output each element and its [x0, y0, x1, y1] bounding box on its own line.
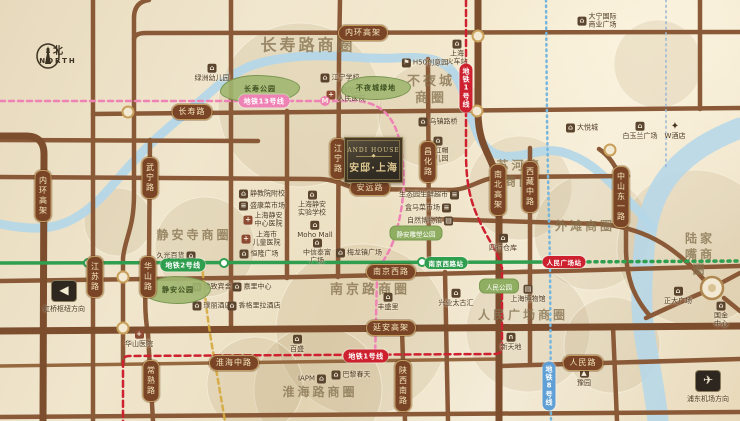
pearl-tower-icon — [35, 43, 61, 69]
bld-icon: ⌂ — [717, 302, 726, 311]
landmark-text: 中信泰富 广场 — [303, 249, 331, 266]
landmark-text: 国金中心 — [712, 312, 731, 329]
landmark-label: ⌂上海静安 实验学校 — [298, 191, 326, 218]
cart-icon: ≡ — [442, 204, 451, 213]
landmark-text: 白玉兰广场 — [623, 132, 658, 140]
bld-icon: ⌂ — [332, 371, 341, 380]
metro-line-1-badge: 地铁1号线 — [343, 350, 388, 363]
landmark-text: 新天地 — [501, 343, 522, 351]
school-icon: ⌂ — [239, 190, 248, 199]
bld-icon: ⌂ — [578, 17, 587, 26]
road-badge: 人民路 — [563, 355, 604, 371]
metro-line-2-badge: 南京西路站 — [425, 257, 468, 269]
flag-icon: ⚑ — [402, 59, 411, 68]
road-badge: 长寿路 — [172, 104, 213, 120]
road-badge: 中山东一路 — [613, 166, 630, 228]
landmark-text: 百盛 — [290, 345, 304, 353]
landmark-label: ⌂梅龙镇广场 — [336, 249, 382, 258]
metro-m-icon: M — [320, 96, 330, 106]
arrow-left-icon: ◀ — [51, 280, 77, 302]
landmark-text: 兴业太古汇 — [439, 299, 474, 307]
landmark-text: 巴黎春天 — [343, 371, 371, 379]
metro-station-m-icon: M — [320, 96, 330, 106]
bld-icon: ⌂ — [313, 239, 322, 248]
landmark-text: 静教院附校 — [250, 190, 285, 198]
landmark-label: ⌂白玉兰广场 — [623, 122, 658, 140]
map-canvas: 长寿路商圈不夜城 商圈苏河湾 商圈外滩商圈陆家嘴商圈静安寺商圈南京路商圈人民广场… — [0, 0, 740, 421]
landmark-text: IAPM — [298, 375, 315, 383]
bld-icon: ⌂ — [336, 249, 345, 258]
direction-text: 虹桥枢纽方向 — [43, 304, 85, 314]
road-badge: 延安高架 — [366, 320, 416, 336]
road-badge: 华山路 — [140, 256, 157, 298]
landmark-text: 盒马菜市场 — [405, 204, 440, 212]
landmark-text: 大悦城 — [577, 124, 598, 132]
museum-icon: ▤ — [444, 217, 453, 226]
business-circle-label: 淮海路商圈 — [282, 385, 357, 401]
bld-icon: ⌂ — [566, 124, 575, 133]
landmark-text: 自然博物馆 — [407, 217, 442, 225]
bld-icon: ⌂ — [419, 118, 428, 127]
landmark-text: 恒隆广场 — [251, 250, 279, 258]
landmark-label: ⌂静教院附校 — [239, 190, 285, 199]
road-badge: 武宁路 — [142, 157, 159, 199]
business-circle-label: 陆家嘴商圈 — [680, 232, 720, 279]
landmark-label: +上海市 儿童医院 — [242, 231, 281, 248]
bld-icon: ⌂ — [636, 122, 645, 131]
landmark-label: ▤自然博物馆 — [407, 217, 453, 226]
road-badge: 常熟路 — [143, 360, 160, 402]
metro-line-13-badge: 地铁13号线 — [239, 95, 290, 108]
bld-icon: ⌂ — [240, 250, 249, 259]
landmark-label: ≡生态园生鲜超市 — [399, 191, 459, 200]
landmark-text: 生态园生鲜超市 — [399, 191, 448, 199]
landmark-text: 豫园 — [577, 379, 591, 387]
direction-text: 浦东机场方向 — [687, 394, 729, 404]
landmark-label: ⌂绿洲幼儿园 — [195, 64, 230, 82]
landmark-text: 嘉里中心 — [244, 283, 272, 291]
landmark-label: ⌂IAPM — [298, 375, 326, 384]
landmark-label: +华山医院 — [125, 330, 153, 348]
landmark-label: ⌂恒隆广场 — [240, 250, 279, 259]
landmark-text: 乌镇路桥 — [430, 118, 458, 126]
bld-icon: ⌂ — [233, 283, 242, 292]
road-badge: 江苏路 — [87, 256, 104, 298]
landmark-label: ⌂上海 火车站 — [447, 40, 468, 67]
school-icon: ⌂ — [208, 64, 217, 73]
landmark-label: ⚑H50创意园 — [402, 59, 448, 68]
landmark-label: ⌂四行仓库 — [489, 234, 517, 252]
direction-hongqiao-hub: ◀虹桥枢纽方向 — [43, 280, 85, 314]
school-icon: ⌂ — [308, 191, 317, 200]
landmark-label: ≡盒马菜市场 — [405, 204, 451, 213]
landmark-text: 绿洲幼儿园 — [195, 74, 230, 82]
business-circle-label: 外滩商圈 — [555, 219, 615, 235]
cart-icon: ≡ — [239, 202, 248, 211]
landmark-label: ⌂巴黎春天 — [332, 371, 371, 380]
bld-icon: ⌂ — [311, 221, 320, 230]
landmark-text: 华山医院 — [125, 340, 153, 348]
landmark-text: H50创意园 — [413, 59, 448, 67]
bld-icon: ⌂ — [674, 287, 683, 296]
park-badge: 人民公园 — [479, 279, 519, 294]
landmark-label: ⌂兴业太古汇 — [439, 289, 474, 307]
label-layer: 长寿路商圈不夜城 商圈苏河湾 商圈外滩商圈陆家嘴商圈静安寺商圈南京路商圈人民广场… — [0, 0, 740, 421]
landmark-label: ▲豫园 — [577, 369, 591, 387]
landmark-text: 盛康菜市场 — [250, 202, 285, 210]
bld-icon: ⌂ — [499, 234, 508, 243]
landmark-text: 大宁国际 商业广场 — [589, 13, 617, 30]
park-area: 不夜城绿地 — [341, 76, 411, 100]
landmark-label: ⌂璞丽酒店 — [193, 302, 232, 311]
landmark-text: W酒店 — [665, 132, 686, 140]
landmark-label: ⌂大宁国际 商业广场 — [578, 13, 617, 30]
arch-icon: ∩ — [507, 333, 516, 342]
road-badge: 南北高架 — [490, 164, 507, 216]
museum-icon: ▤ — [524, 285, 533, 294]
cross-icon: + — [135, 330, 144, 339]
plane-icon: ✈ — [695, 370, 721, 392]
landmark-text: 正大广场 — [664, 297, 692, 305]
landmark-label: +上海静安 中心医院 — [244, 212, 283, 229]
landmark-label: ⌂丰盛里 — [378, 293, 399, 311]
school-icon: ⌂ — [321, 74, 330, 83]
metro-line-1-badge: 地铁1号线 — [460, 64, 473, 113]
landmark-label: ⌂香格里拉酒店 — [228, 302, 281, 311]
cross-icon: + — [242, 235, 251, 244]
landmark-label: ⌂大悦城 — [566, 124, 598, 133]
road-badge: 昌化路 — [420, 141, 437, 183]
metro-line-2-badge: 地铁2号线 — [160, 259, 205, 272]
road-badge: 西藏中路 — [522, 161, 539, 213]
business-circle-label: 人民广场商圈 — [478, 308, 568, 324]
metro-line-8-badge: 地铁8号线 — [543, 362, 556, 411]
business-circle-label: 不夜城 商圈 — [407, 74, 455, 108]
landmark-label: ⌂百盛 — [290, 335, 304, 353]
landmark-text: 四行仓库 — [489, 244, 517, 252]
landmark-text: 上海静安 中心医院 — [255, 212, 283, 229]
bld-icon: ⌂ — [317, 375, 326, 384]
bld-icon: ⌂ — [193, 302, 202, 311]
landmark-text: 上海静安 实验学校 — [298, 201, 326, 218]
metro-line-1-badge: 人民广场站 — [543, 256, 586, 268]
road-badge: 内环高架 — [35, 170, 52, 222]
landmark-label: ⌂乌镇路桥 — [419, 118, 458, 127]
bld-icon: ⌂ — [452, 289, 461, 298]
ornament-divider — [356, 156, 392, 157]
landmark-label: ⌂国金中心 — [712, 302, 731, 329]
landmark-label: ⌂正大广场 — [664, 287, 692, 305]
landmark-label: ✦W酒店 — [665, 122, 686, 140]
star-icon: ✦ — [670, 122, 679, 131]
bld-icon: ⌂ — [228, 302, 237, 311]
landmark-text: 香格里拉酒店 — [239, 302, 281, 310]
road-badge: 陕西南路 — [395, 360, 412, 412]
landmark-text: 丰盛里 — [378, 303, 399, 311]
landmark-label: ⌂Moho Mall — [297, 221, 333, 239]
road-badge: 内环高架 — [338, 25, 388, 41]
project-badge-andi-house: ANDI HOUSE 安邸·上海 — [344, 137, 403, 183]
bld-icon: ⌂ — [293, 335, 302, 344]
landmark-label: ≡盛康菜市场 — [239, 202, 285, 211]
direction-pudong-airport: ✈浦东机场方向 — [687, 370, 729, 404]
compass-north: 北 NORTH — [35, 42, 81, 65]
landmark-label: ⌂嘉里中心 — [233, 283, 272, 292]
project-name-cn: 安邸·上海 — [349, 159, 398, 174]
landmark-text: 上海市 儿童医院 — [253, 231, 281, 248]
park-badge: 静安雕塑公园 — [390, 226, 443, 241]
business-circle-label: 静安寺商圈 — [156, 228, 231, 244]
cart-icon: ≡ — [450, 191, 459, 200]
train-icon: ⌂ — [453, 40, 462, 49]
landmark-text: 梅龙镇广场 — [347, 249, 382, 257]
bld-icon: ⌂ — [384, 293, 393, 302]
cross-icon: + — [244, 216, 253, 225]
road-badge: 南京西路 — [366, 264, 416, 280]
landmark-text: 上海博物馆 — [511, 295, 546, 303]
road-badge: 淮海中路 — [209, 355, 259, 371]
landmark-label: ⌂中信泰富 广场 — [303, 239, 331, 266]
landmark-label: ∩新天地 — [501, 333, 522, 351]
